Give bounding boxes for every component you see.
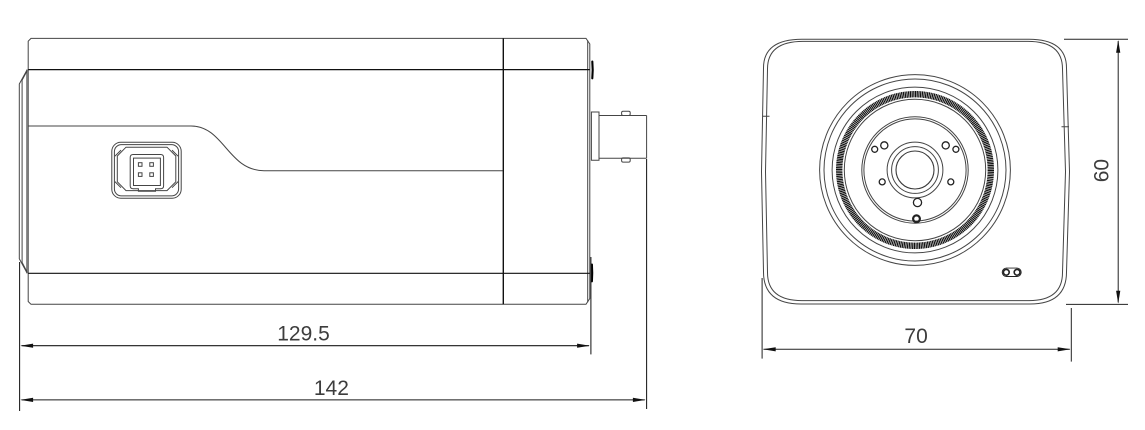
svg-text:142: 142 (314, 377, 349, 400)
svg-text:70: 70 (904, 325, 927, 348)
svg-text:60: 60 (1091, 159, 1114, 182)
svg-text:129.5: 129.5 (277, 323, 330, 346)
